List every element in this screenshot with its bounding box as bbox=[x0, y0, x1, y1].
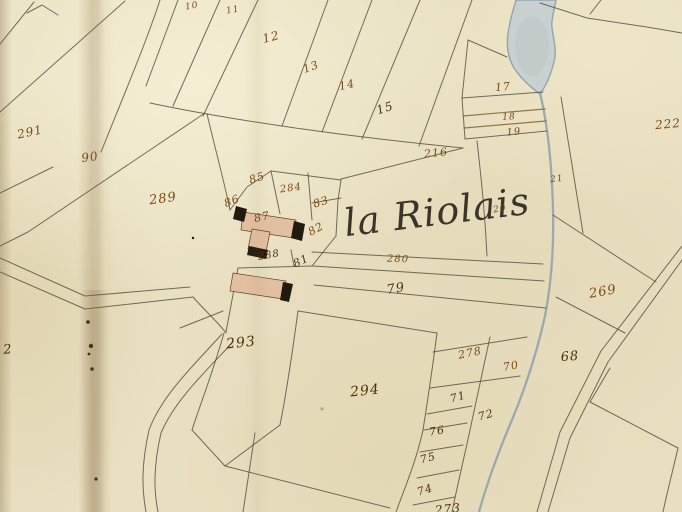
parcel-number-278: 278 bbox=[457, 345, 483, 361]
parcel-number-79: 79 bbox=[386, 281, 407, 297]
parcel-number-291: 291 bbox=[16, 123, 44, 140]
parcel-number-90: 90 bbox=[81, 150, 100, 164]
parcel-number-2: 2 bbox=[3, 343, 13, 357]
parcel-number-87: 87 bbox=[253, 210, 271, 224]
parcel-number-68: 68 bbox=[560, 350, 580, 365]
parcel-number-294: 294 bbox=[349, 382, 380, 399]
parcel-number-18: 18 bbox=[502, 113, 516, 123]
parcel-number-273: 273 bbox=[434, 502, 461, 512]
parcel-number-12: 12 bbox=[261, 29, 281, 45]
cadastral-map-scan: la Riolais 10111213141517181922229190289… bbox=[0, 0, 682, 512]
parcel-number-75: 75 bbox=[419, 451, 437, 466]
parcel-number-14: 14 bbox=[338, 78, 356, 92]
parcel-number-269: 269 bbox=[588, 283, 618, 301]
parcel-number-15: 15 bbox=[375, 100, 395, 117]
parcel-number-83: 83 bbox=[312, 194, 331, 209]
parcel-number-20: 20 bbox=[493, 204, 508, 215]
parcel-number-216: 216 bbox=[423, 146, 448, 159]
parcel-number-21: 21 bbox=[550, 175, 565, 186]
parcel-number-71: 71 bbox=[449, 390, 467, 405]
parcel-number-86: 86 bbox=[223, 193, 242, 209]
parcel-number-72: 72 bbox=[477, 408, 495, 423]
parcel-number-13: 13 bbox=[302, 59, 321, 75]
parcel-number-288: 288 bbox=[257, 249, 280, 263]
parcel-number-222: 222 bbox=[655, 117, 682, 131]
parcel-number-289: 289 bbox=[148, 191, 177, 208]
parcel-number-11: 11 bbox=[226, 5, 241, 16]
parcel-number-17: 17 bbox=[495, 81, 512, 93]
parcel-number-19: 19 bbox=[506, 127, 522, 138]
parcel-number-82: 82 bbox=[306, 220, 325, 237]
parcel-number-76: 76 bbox=[428, 424, 446, 438]
parcel-number-284: 284 bbox=[279, 183, 302, 196]
parcel-number-10: 10 bbox=[185, 1, 200, 12]
parcel-number-85: 85 bbox=[248, 170, 267, 185]
parcel-number-293: 293 bbox=[225, 334, 256, 351]
parcel-number-280: 280 bbox=[387, 255, 409, 266]
parcel-number-74: 74 bbox=[416, 482, 435, 497]
parcel-number-70: 70 bbox=[502, 359, 520, 373]
parcel-number-81: 81 bbox=[291, 253, 310, 270]
parcel-number-layer: 1011121314151718192222919028921621208528… bbox=[0, 0, 682, 512]
